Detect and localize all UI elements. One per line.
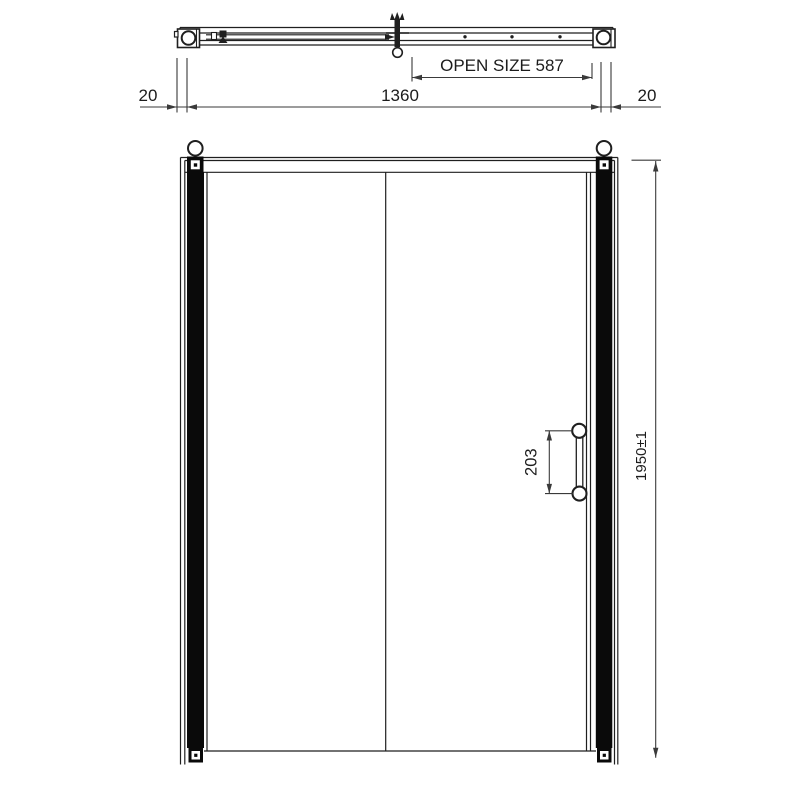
frame-verticals [181,158,618,765]
handle-centres-dimension [545,431,573,494]
left-finial [187,141,204,174]
overall-height-label: 1950±1 [633,431,650,481]
guide-crown-icon [390,12,404,20]
right-end-bracket [593,29,615,48]
left-wall-thickness-label: 20 [139,86,158,105]
right-wall-profile [596,172,613,748]
sliding-panel-plan [206,34,395,40]
left-finial-ball-icon [188,141,203,156]
open-size-label: OPEN SIZE 587 [440,56,564,75]
right-finial-ball-icon [597,141,612,156]
technical-drawing-shower-door: OPEN SIZE 587 20 1360 20 [0,0,800,800]
top-rail [181,158,618,173]
handle-top-fixing-icon [572,424,586,438]
fixing-holes [463,35,561,38]
right-foot-bracket [597,748,612,763]
overall-width-label: 1360 [381,86,419,105]
travel-arrow-icon [385,34,395,40]
door-handle [572,424,586,501]
left-foot-bracket [189,748,204,763]
left-end-bracket [175,29,200,48]
centre-guide-assembly [386,12,409,57]
handle-centres-label: 203 [523,448,541,476]
drawing-svg: OPEN SIZE 587 20 1360 20 [0,0,800,800]
left-wall-profile [187,172,204,748]
right-wall-thickness-label: 20 [638,86,657,105]
right-finial [596,141,613,174]
plan-view-track [175,12,616,57]
front-elevation [181,141,618,765]
handle-bottom-fixing-icon [573,487,587,501]
